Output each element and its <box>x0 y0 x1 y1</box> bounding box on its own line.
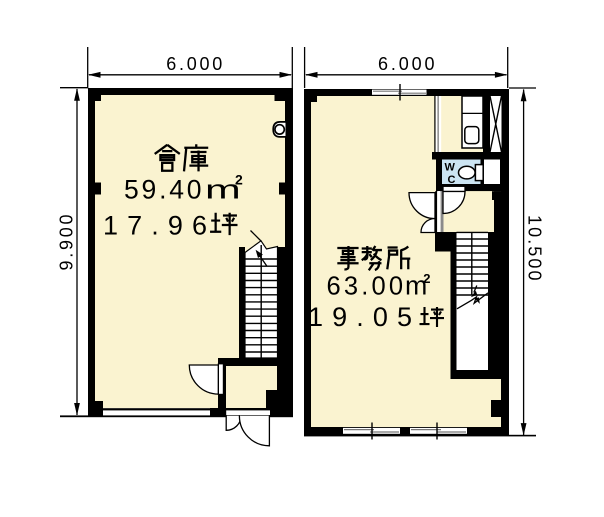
svg-text:63.00: 63.00 <box>327 273 407 301</box>
svg-text:6.000: 6.000 <box>378 54 435 74</box>
svg-text:W: W <box>445 162 456 174</box>
svg-text:9.900: 9.900 <box>57 215 77 271</box>
svg-text:6.000: 6.000 <box>166 54 222 74</box>
svg-text:2: 2 <box>235 171 243 187</box>
svg-text:10.500: 10.500 <box>525 215 545 281</box>
svg-text:59.40: 59.40 <box>124 175 204 205</box>
svg-text:2: 2 <box>423 271 430 286</box>
